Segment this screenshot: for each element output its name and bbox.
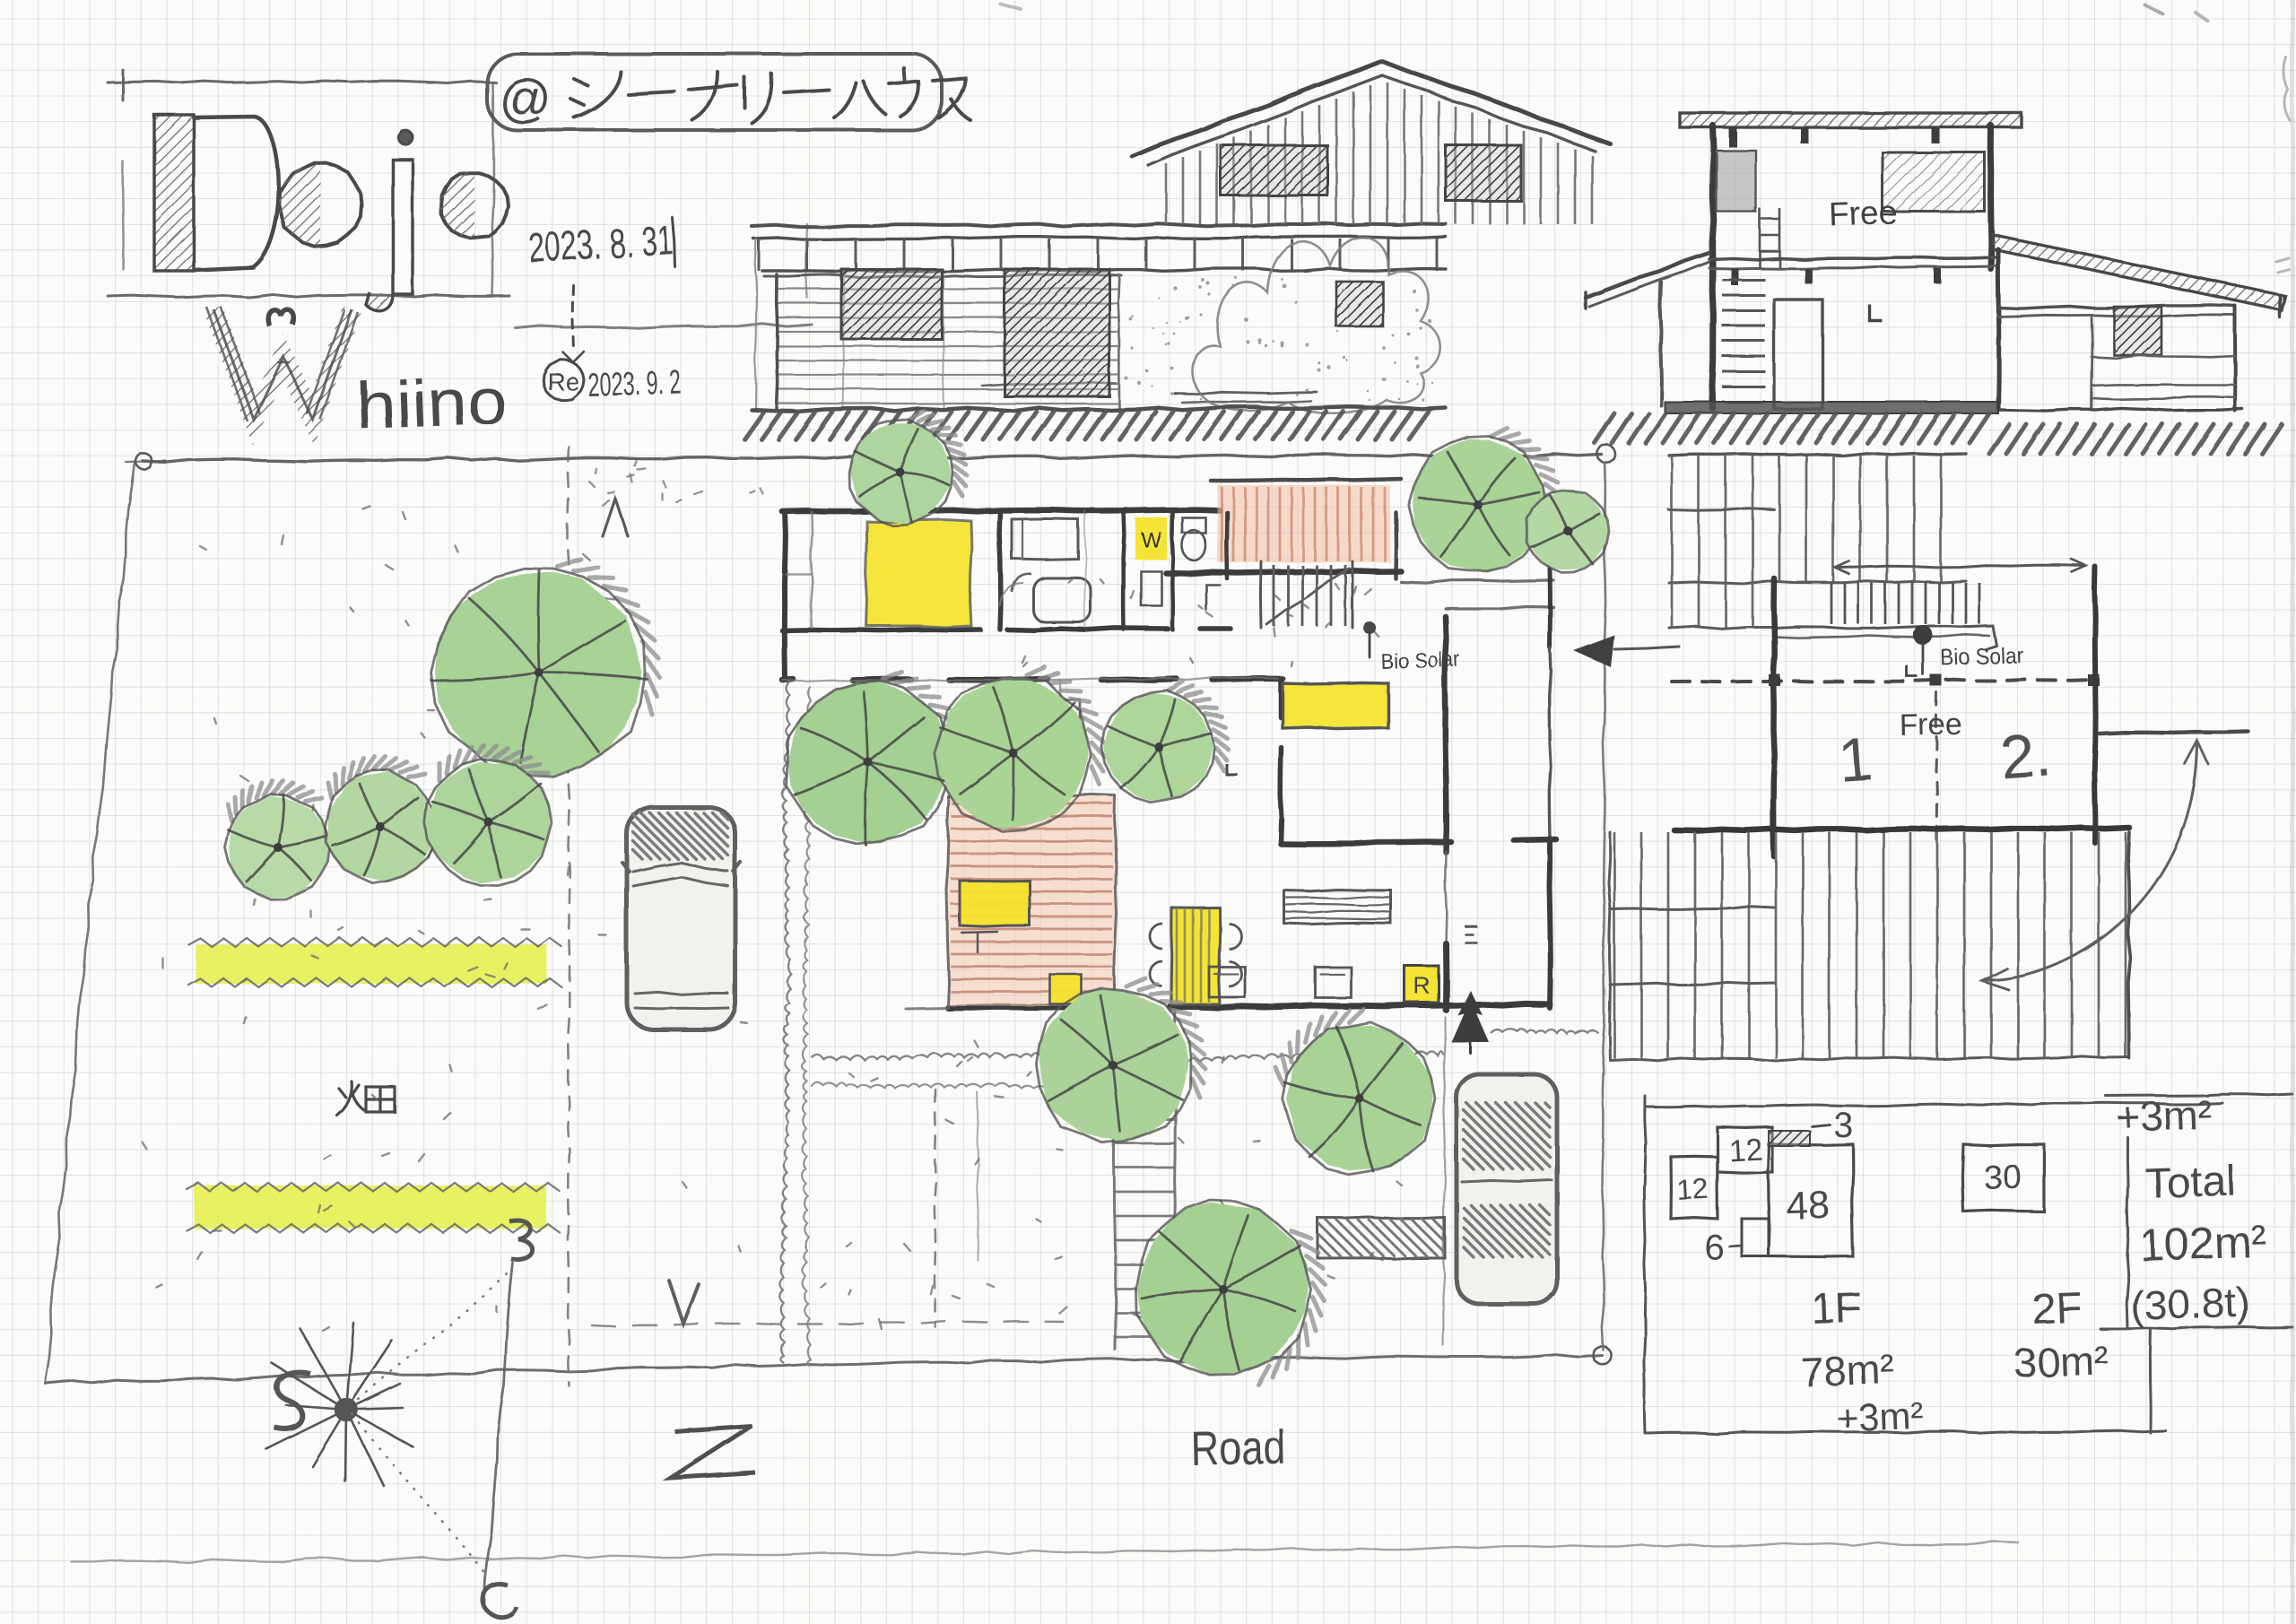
svg-text:@: @ [499,70,552,128]
svg-text:6: 6 [1704,1228,1724,1267]
svg-text:48: 48 [1786,1183,1831,1229]
svg-text:1F: 1F [1811,1284,1863,1333]
svg-text:30: 30 [1983,1159,2022,1197]
svg-text:Total: Total [2144,1157,2237,1208]
svg-text:Road: Road [1190,1420,1286,1476]
svg-text:R: R [1413,972,1431,999]
svg-text:(30.8t): (30.8t) [2130,1278,2251,1329]
svg-text:Bio Solar: Bio Solar [1380,647,1460,674]
svg-text:W: W [1141,528,1161,552]
svg-text:1: 1 [1837,725,1875,795]
svg-text:hiino: hiino [355,363,509,443]
svg-text:78m²: 78m² [1800,1345,1896,1395]
svg-text:2023. 8. 31: 2023. 8. 31 [527,217,674,271]
svg-text:2F: 2F [2031,1284,2083,1333]
svg-text:Free: Free [1829,194,1898,233]
svg-text:12: 12 [1727,1133,1763,1168]
svg-text:Re: Re [547,368,579,395]
svg-text:3: 3 [1833,1106,1853,1145]
svg-text:2023. 9. 2: 2023. 9. 2 [587,363,682,404]
svg-text:+3m²: +3m² [2116,1090,2213,1141]
svg-text:12: 12 [1675,1172,1709,1206]
svg-text:+3m²: +3m² [1836,1394,1924,1439]
svg-text:30m²: 30m² [2013,1336,2109,1386]
svg-text:Free: Free [1899,708,1962,743]
svg-text:2.: 2. [1998,720,2054,792]
svg-text:102m²: 102m² [2138,1216,2267,1271]
svg-text:Bio Solar: Bio Solar [1940,643,2023,671]
